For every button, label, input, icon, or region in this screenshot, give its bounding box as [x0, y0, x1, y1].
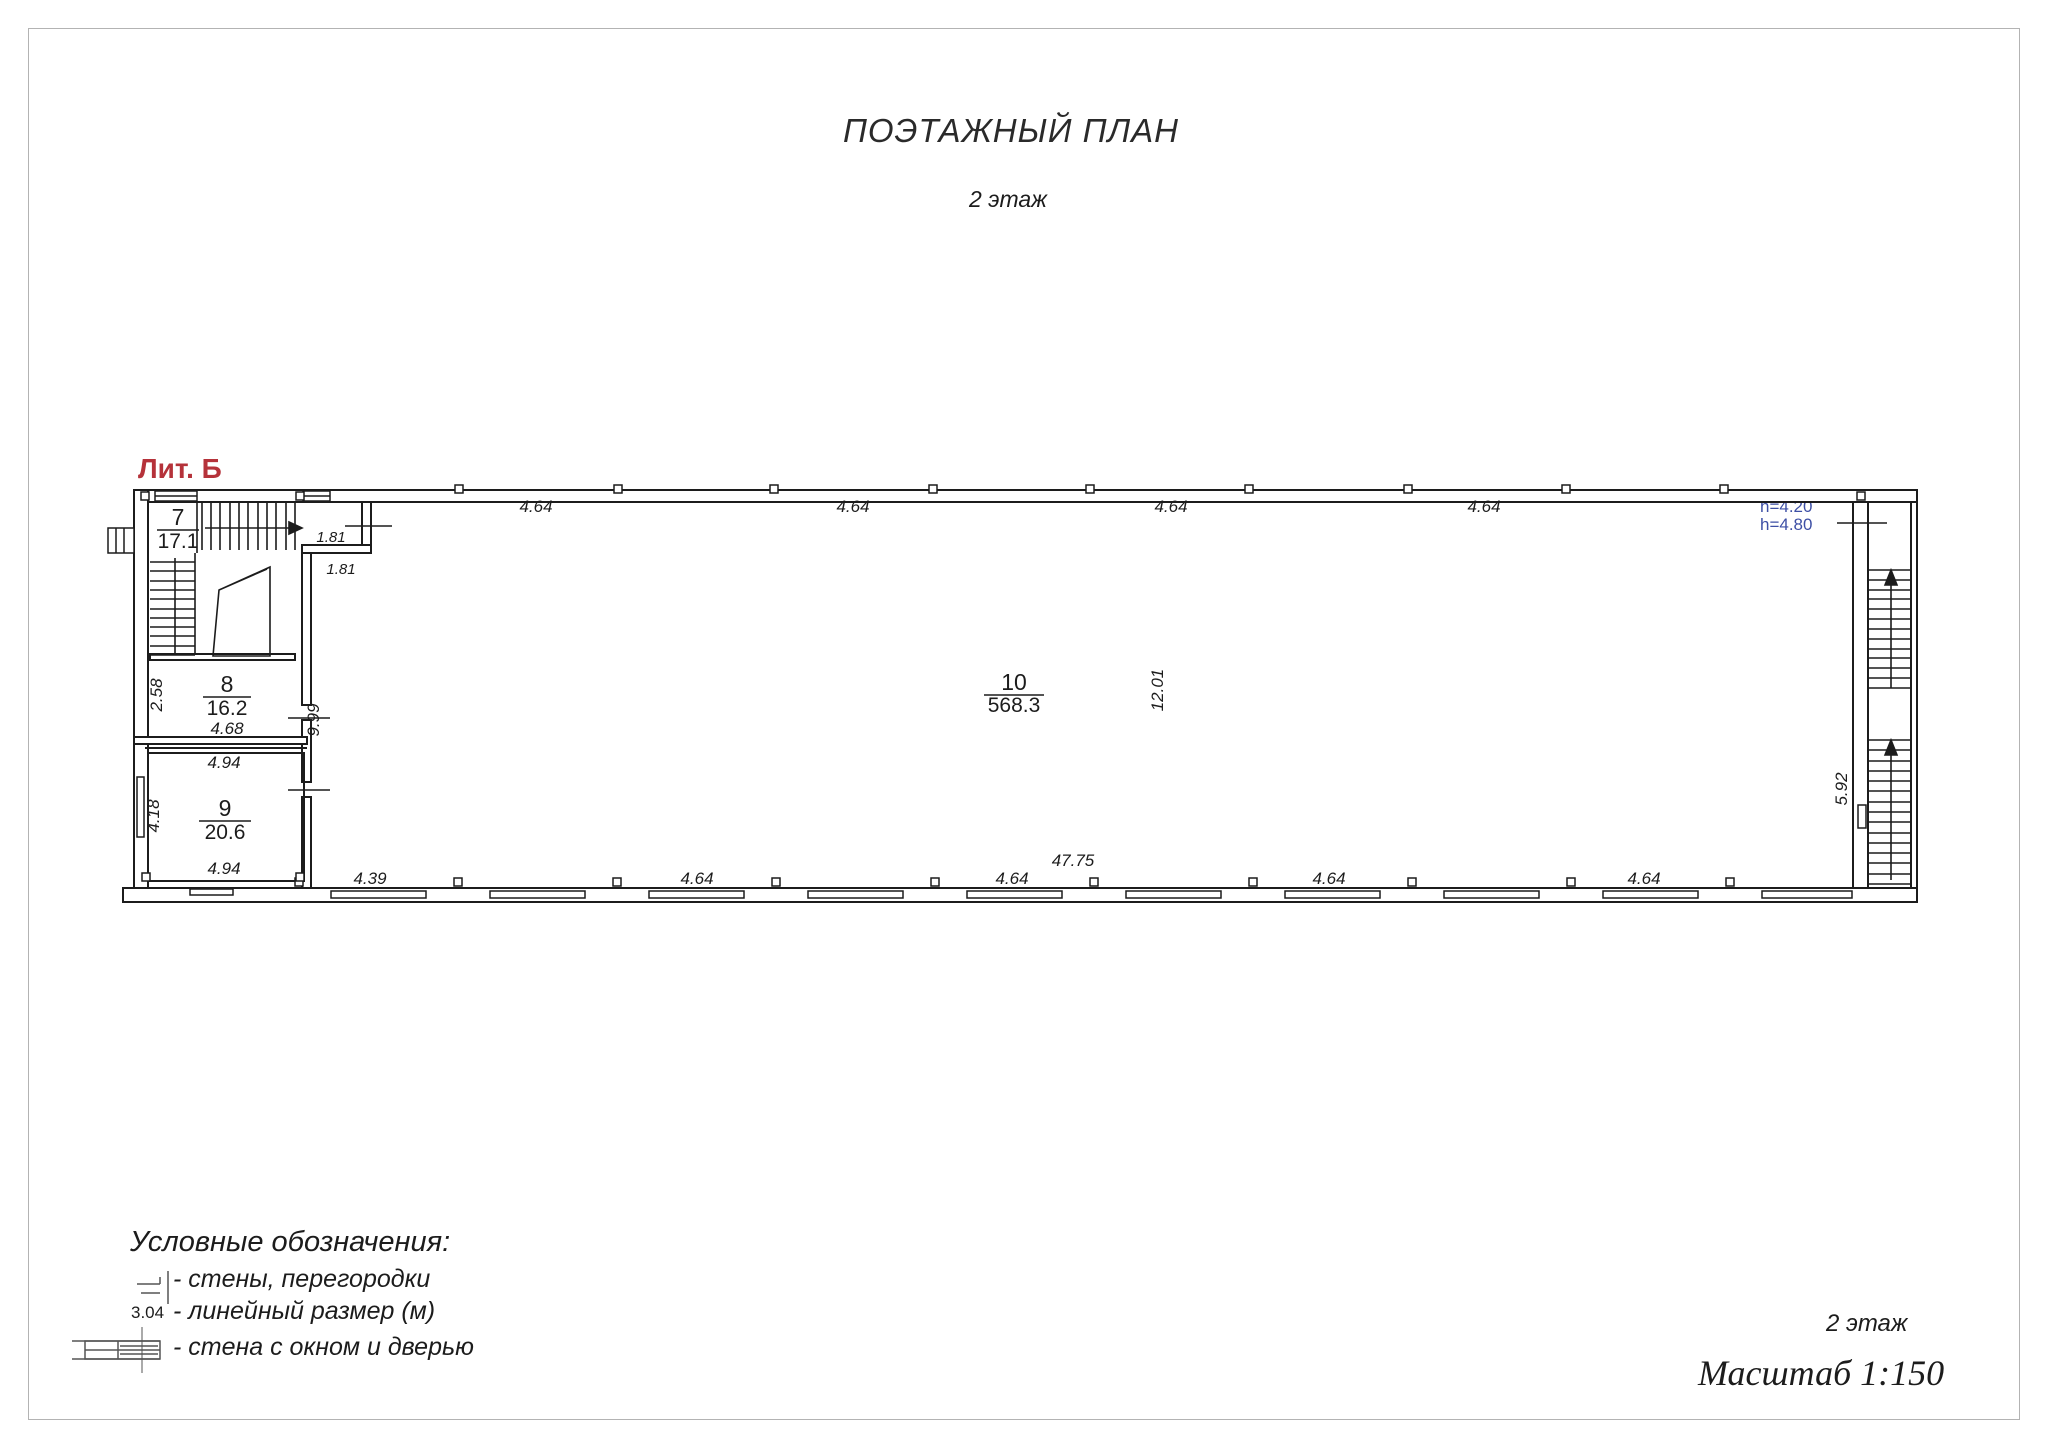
room9-area: 20.6 [205, 821, 246, 844]
footer-floor-label: 2 этаж [1826, 1310, 1907, 1338]
legend-symbol-wall [137, 1271, 168, 1304]
legend-item-walls: - стены, перегородки [173, 1265, 430, 1294]
dim-bottom-2: 4.64 [680, 869, 713, 888]
room10-number: 10 [1001, 669, 1027, 695]
floor-plan-sheet: ПОЭТАЖНЫЙ ПЛАН 2 этаж Лит. Б h=4.20 h=4.… [0, 0, 2048, 1448]
dim-stair-block-length: 9.99 [304, 703, 323, 737]
dim-bottom-4: 4.64 [1312, 869, 1345, 888]
dim-top-1: 4.64 [519, 497, 552, 516]
dim-bottom-1: 4.39 [353, 869, 387, 888]
dim-right-stairs-length: 5.92 [1832, 772, 1851, 806]
dim-hall-depth: 12.01 [1148, 669, 1167, 712]
room10-area: 568.3 [988, 694, 1041, 717]
dim-bottom-3: 4.64 [995, 869, 1028, 888]
legend-title: Условные обозначения: [130, 1226, 450, 1259]
dim-top-4: 4.64 [1467, 497, 1500, 516]
stair-direction-arrows [205, 522, 1897, 880]
room9-number: 9 [219, 795, 232, 821]
room8-number: 8 [221, 671, 234, 697]
footer-scale-label: Масштаб 1:150 [1698, 1352, 1944, 1394]
dim-room8-depth: 2.58 [147, 678, 166, 713]
room7-area: 17.1 [158, 530, 199, 553]
dim-room9-depth: 4.18 [144, 799, 163, 833]
dim-step-1: 1.81 [316, 529, 345, 546]
dim-total-length: 47.75 [1052, 851, 1095, 870]
dim-room9-width-top: 4.94 [207, 753, 240, 772]
room7-number: 7 [172, 504, 185, 530]
dim-step-2: 1.81 [326, 561, 355, 578]
dim-room9-width-bottom: 4.94 [207, 859, 240, 878]
legend-symbol-wall-window-door [72, 1327, 160, 1373]
dim-top-2: 4.64 [836, 497, 869, 516]
legend-item-wall-window-door: - стена с окном и дверью [173, 1333, 474, 1362]
room-labels: 7 17.1 8 16.2 9 20.6 10 568.3 [157, 504, 1044, 844]
dim-room8-width: 4.68 [210, 719, 244, 738]
legend-item-linear-dim: - линейный размер (м) [173, 1297, 435, 1326]
stair-break-symbol [213, 567, 270, 656]
dim-top-3: 4.64 [1154, 497, 1187, 516]
dim-bottom-5: 4.64 [1627, 869, 1660, 888]
room8-area: 16.2 [207, 697, 248, 720]
door-symbols [288, 523, 1887, 790]
legend-linear-dim-example: 3.04 [131, 1303, 164, 1323]
dimension-labels: 4.64 4.64 4.64 4.64 1.81 1.81 4.68 4.94 … [144, 497, 1851, 888]
